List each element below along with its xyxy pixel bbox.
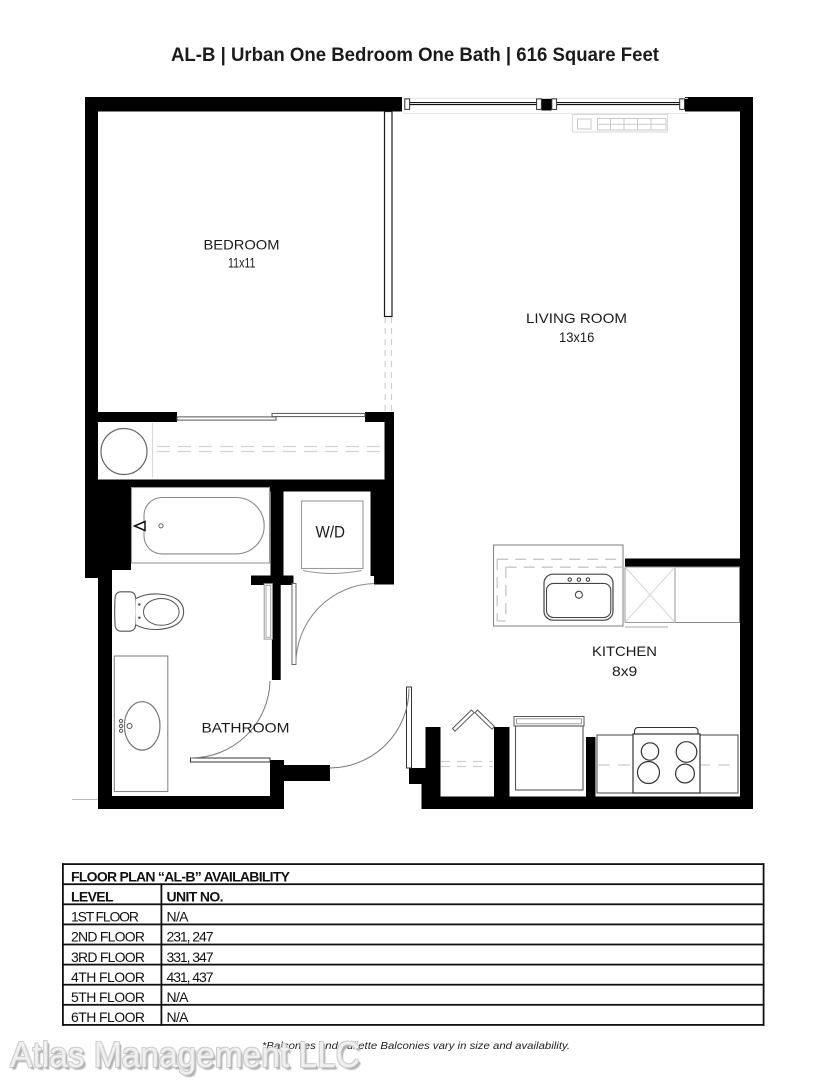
svg-text:331, 347: 331, 347 bbox=[167, 949, 214, 965]
svg-text:2ND FLOOR: 2ND FLOOR bbox=[71, 929, 145, 945]
svg-text:LIVING ROOM: LIVING ROOM bbox=[526, 310, 627, 326]
svg-text:UNIT NO.: UNIT NO. bbox=[167, 889, 224, 905]
svg-text:3RD FLOOR: 3RD FLOOR bbox=[71, 949, 145, 965]
svg-text:N/A: N/A bbox=[167, 909, 190, 925]
svg-text:4TH FLOOR: 4TH FLOOR bbox=[71, 969, 145, 985]
svg-text:N/A: N/A bbox=[167, 989, 190, 1005]
svg-text:FLOOR PLAN “AL-B” AVAILABILITY: FLOOR PLAN “AL-B” AVAILABILITY bbox=[71, 868, 291, 884]
svg-text:6TH FLOOR: 6TH FLOOR bbox=[71, 1009, 145, 1025]
svg-text:431, 437: 431, 437 bbox=[167, 969, 214, 985]
svg-text:13x16: 13x16 bbox=[559, 330, 594, 345]
svg-text:8x9: 8x9 bbox=[612, 664, 637, 679]
svg-text:LEVEL: LEVEL bbox=[71, 889, 114, 905]
svg-text:N/A: N/A bbox=[167, 1009, 190, 1025]
svg-text:231, 247: 231, 247 bbox=[167, 929, 214, 945]
svg-text:KITCHEN: KITCHEN bbox=[592, 643, 657, 659]
svg-text:5TH FLOOR: 5TH FLOOR bbox=[71, 989, 145, 1005]
svg-text:AL-B | Urban One Bedroom One B: AL-B | Urban One Bedroom One Bath | 616 … bbox=[171, 45, 660, 66]
svg-text:11x11: 11x11 bbox=[228, 256, 256, 271]
svg-text:BEDROOM: BEDROOM bbox=[204, 237, 280, 253]
svg-text:W/D: W/D bbox=[316, 523, 346, 542]
svg-text:1ST FLOOR: 1ST FLOOR bbox=[71, 909, 139, 925]
svg-text:BATHROOM: BATHROOM bbox=[202, 720, 290, 736]
